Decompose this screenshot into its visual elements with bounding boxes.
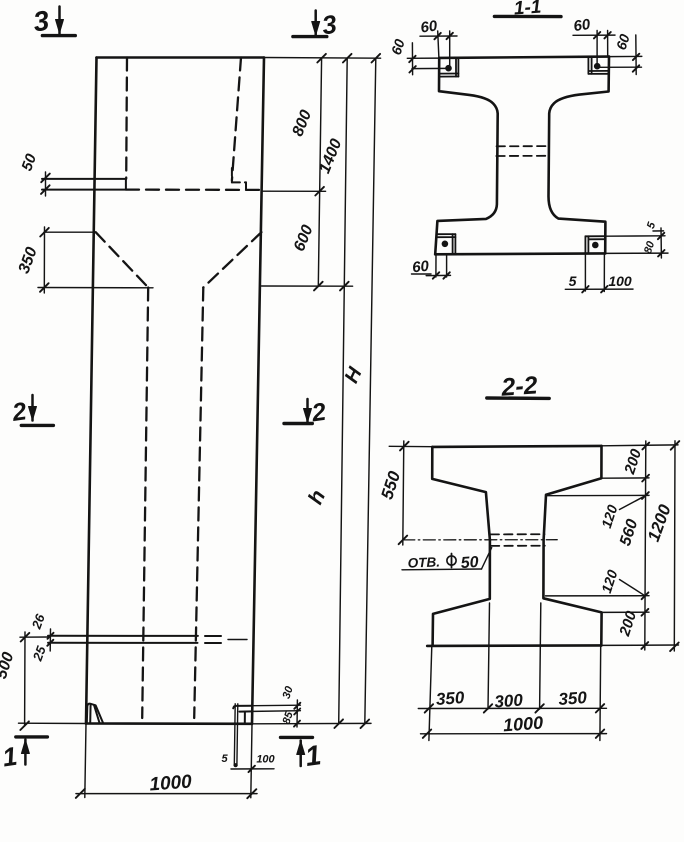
svg-text:350: 350: [435, 688, 465, 709]
svg-text:1000: 1000: [502, 713, 543, 736]
svg-text:5: 5: [569, 273, 577, 289]
svg-text:5: 5: [221, 753, 228, 765]
svg-text:60: 60: [419, 17, 439, 36]
svg-text:ОТВ.: ОТВ.: [407, 554, 440, 570]
svg-text:100: 100: [256, 754, 275, 766]
svg-text:300: 300: [494, 691, 524, 712]
svg-text:100: 100: [608, 273, 632, 289]
svg-text:60: 60: [572, 16, 592, 35]
svg-text:1000: 1000: [149, 772, 193, 796]
svg-text:350: 350: [558, 688, 588, 709]
